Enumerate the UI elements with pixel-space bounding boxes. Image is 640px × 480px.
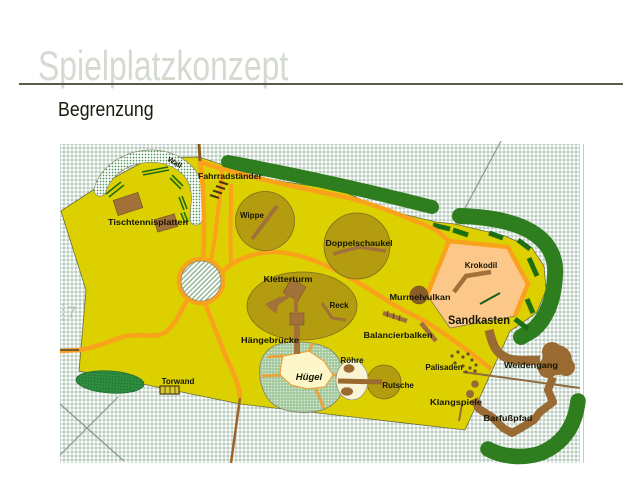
svg-text:Torwand: Torwand [162, 377, 195, 386]
svg-text:Doppelschaukel: Doppelschaukel [326, 239, 393, 248]
svg-text:Murmelvulkan: Murmelvulkan [390, 293, 451, 302]
svg-text:Rutsche: Rutsche [382, 381, 414, 390]
svg-text:Weidengang: Weidengang [504, 361, 558, 370]
svg-text:Hügel: Hügel [296, 372, 323, 383]
svg-text:Wippe: Wippe [240, 211, 264, 220]
svg-text:Klangspiele: Klangspiele [430, 398, 483, 407]
svg-text:Kletterturm: Kletterturm [264, 275, 313, 284]
svg-text:Krokodil: Krokodil [465, 261, 497, 270]
svg-text:Barfußpfad: Barfußpfad [484, 414, 533, 423]
svg-text:Röhre: Röhre [340, 356, 364, 365]
svg-text:7: 7 [67, 303, 76, 322]
svg-text:Palisaden: Palisaden [425, 363, 462, 372]
svg-text:Sandkasten: Sandkasten [448, 315, 510, 327]
svg-text:Balancierbalken: Balancierbalken [364, 331, 433, 340]
svg-text:Tischtennisplatten: Tischtennisplatten [108, 218, 188, 227]
svg-text:Reck: Reck [329, 301, 349, 310]
svg-text:Fahrradständer: Fahrradständer [198, 172, 262, 181]
svg-text:Hängebrücke: Hängebrücke [241, 336, 300, 345]
